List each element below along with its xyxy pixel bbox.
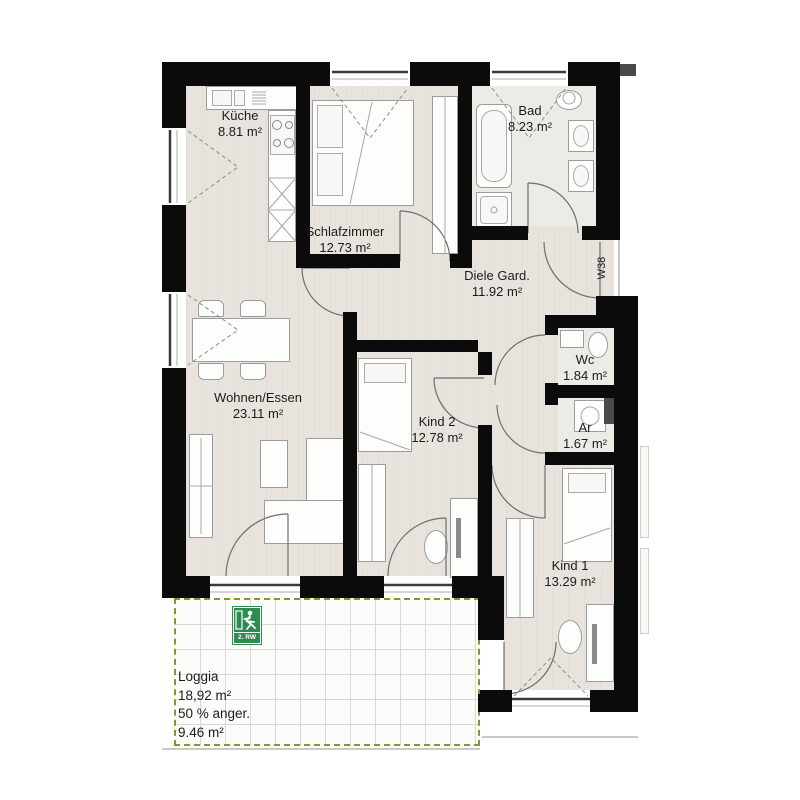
wall-segment [545, 452, 614, 465]
loggia-reduced-area: 9.46 m² [178, 724, 250, 743]
neighbor-outline-lower [640, 548, 649, 634]
desk-kind1 [586, 604, 614, 682]
bed-pillow [568, 473, 606, 493]
wall-segment [452, 576, 504, 598]
room-name: Bad [470, 103, 590, 119]
bad-sink-basin [573, 165, 589, 187]
slab-edge-line [162, 748, 480, 750]
room-area: 1.84 m² [525, 368, 645, 384]
room-name: Schlafzimmer [285, 224, 405, 240]
room-label-kind1: Kind 1 13.29 m² [510, 558, 630, 590]
wc-sink [560, 330, 584, 348]
coffee-table [260, 440, 288, 488]
wall-segment [296, 254, 400, 268]
wall-segment [582, 226, 620, 240]
room-area: 12.78 m² [377, 430, 497, 446]
exterior-corridor-line [618, 240, 620, 298]
neighbor-outline-upper [640, 446, 649, 538]
sideboard [189, 434, 213, 538]
wall-segment [162, 368, 186, 592]
kitchen-sink-basin-small [234, 90, 245, 106]
bed-pillow [317, 105, 343, 148]
unit-number-label: W38 [596, 240, 608, 296]
room-label-wohnen: Wohnen/Essen 23.11 m² [198, 390, 318, 422]
wall-segment [162, 576, 210, 598]
wall-segment [590, 690, 638, 712]
chair-kind2 [424, 530, 448, 564]
room-label-diele: Diele Gard. 11.92 m² [437, 268, 557, 300]
room-area: 12.73 m² [285, 240, 405, 256]
emergency-exit-sign-inner: 2. RW [233, 607, 261, 644]
room-name: Kind 2 [377, 414, 497, 430]
room-name: Wc [525, 352, 645, 368]
dining-chair [240, 300, 266, 317]
wall-segment [545, 315, 558, 335]
room-label-schlafzimmer: Schlafzimmer 12.73 m² [285, 224, 405, 256]
wall-segment [596, 86, 620, 226]
room-name: Diele Gard. [437, 268, 557, 284]
wall-segment [162, 205, 186, 292]
dining-table [192, 318, 290, 362]
room-area: 23.11 m² [198, 406, 318, 422]
wall-segment [450, 254, 458, 268]
wall-segment [478, 352, 492, 375]
room-name: Küche [180, 108, 300, 124]
loggia-label-block: Loggia 18,92 m² 50 % anger. 9.46 m² [178, 668, 250, 742]
room-label-bad: Bad 8.23 m² [470, 103, 590, 135]
bed-pillow [364, 363, 406, 383]
room-label-ar: Ar 1.67 m² [525, 420, 645, 452]
chair-kind1 [558, 620, 582, 654]
wardrobe-schlafzimmer [432, 96, 458, 254]
room-name: Kind 1 [510, 558, 630, 574]
room-label-kueche: Küche 8.81 m² [180, 108, 300, 140]
wardrobe-kind2 [358, 464, 386, 562]
emergency-exit-sign: 2. RW [232, 606, 262, 645]
shower-inner [480, 196, 508, 224]
wall-segment [343, 312, 357, 576]
room-name: Ar [525, 420, 645, 436]
desk-kind2 [450, 498, 478, 578]
dining-chair [198, 363, 224, 380]
wall-segment [480, 690, 512, 712]
dining-chair [240, 363, 266, 380]
monitor-kind1 [592, 624, 597, 664]
wall-segment [162, 62, 330, 86]
floor-plan: Küche 8.81 m² Schlafzimmer 12.73 m² Bad … [0, 0, 800, 800]
room-label-wc: Wc 1.84 m² [525, 352, 645, 384]
room-area: 8.81 m² [180, 124, 300, 140]
sofa-horizontal [264, 500, 344, 544]
room-label-kind2: Kind 2 12.78 m² [377, 414, 497, 446]
wall-segment [300, 576, 384, 598]
monitor-kind2 [456, 518, 461, 558]
wall-segment [458, 226, 528, 240]
bed-pillow [317, 153, 343, 196]
exit-sign-label: 2. RW [234, 632, 260, 642]
loggia-name: Loggia [178, 668, 250, 687]
wall-segment [478, 425, 492, 576]
wall-segment [410, 62, 490, 86]
room-area: 13.29 m² [510, 574, 630, 590]
room-name: Wohnen/Essen [198, 390, 318, 406]
loggia-note: 50 % anger. [178, 705, 250, 724]
loggia-area: 18,92 m² [178, 687, 250, 706]
dining-chair [198, 300, 224, 317]
room-area: 1.67 m² [525, 436, 645, 452]
slab-edge-line-right [482, 736, 638, 738]
wall-segment [545, 385, 614, 398]
kitchen-sink-basin-large [212, 90, 232, 106]
room-area: 8.23 m² [470, 119, 590, 135]
wall-segment [568, 62, 620, 86]
running-man-icon [234, 608, 260, 632]
room-area: 11.92 m² [437, 284, 557, 300]
wall-segment [356, 340, 478, 352]
